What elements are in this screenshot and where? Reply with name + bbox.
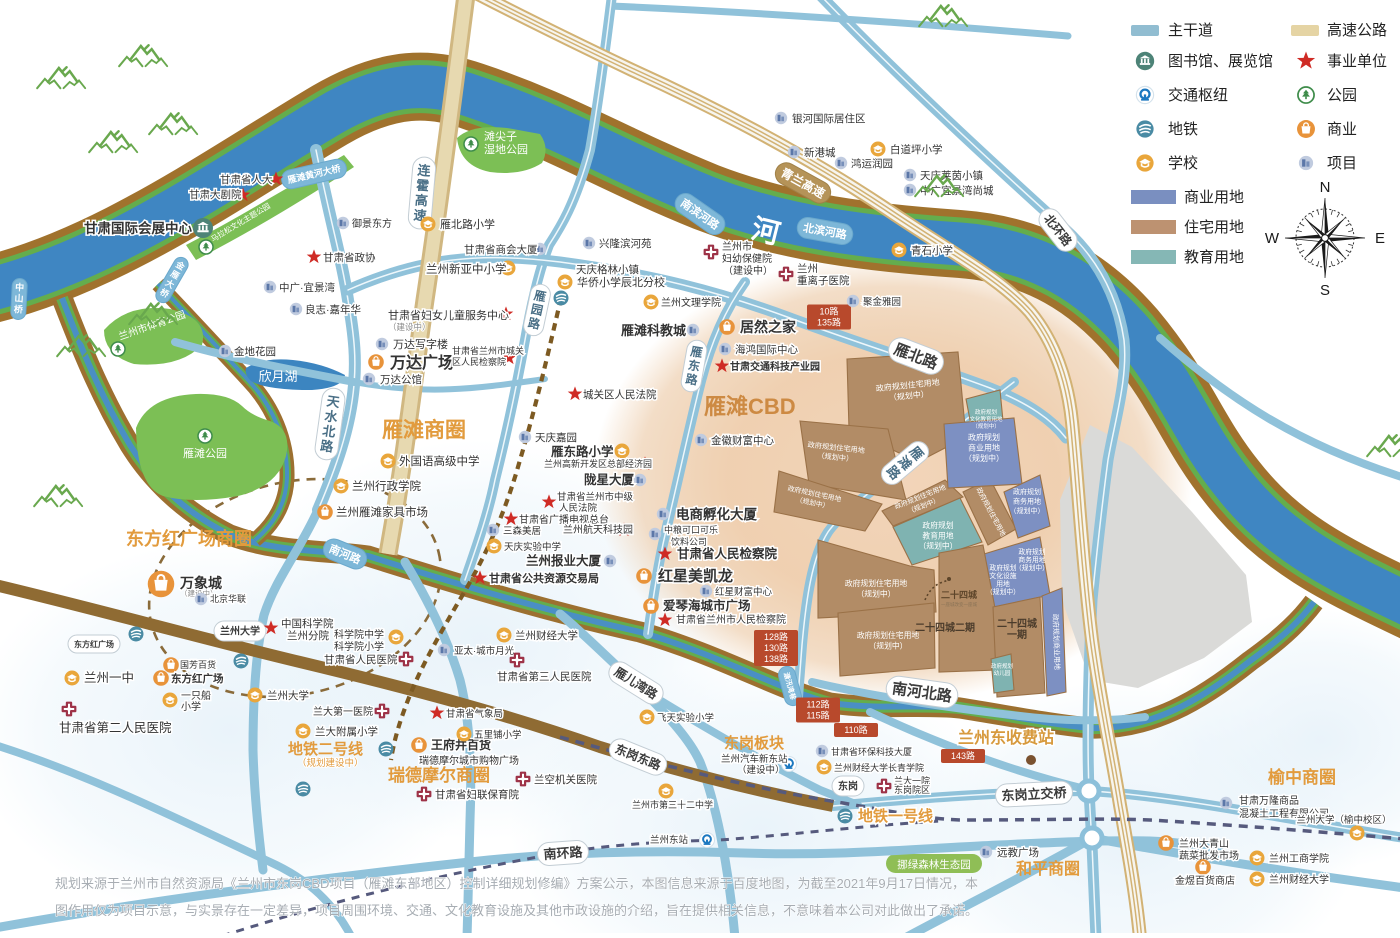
svg-text:新港城: 新港城 xyxy=(804,146,836,159)
svg-text:雁滩科教城: 雁滩科教城 xyxy=(621,323,686,338)
svg-text:甘肃省第三人民医院: 甘肃省第三人民医院 xyxy=(497,670,592,683)
svg-text:雁滩公园: 雁滩公园 xyxy=(183,446,227,460)
svg-text:东方红广场商圈: 东方红广场商圈 xyxy=(126,528,252,549)
svg-text:东方红广场: 东方红广场 xyxy=(171,672,224,685)
svg-text:外国语高级中学: 外国语高级中学 xyxy=(399,454,480,468)
svg-text:重离子医院: 重离子医院 xyxy=(797,274,850,287)
svg-text:天庆嘉园: 天庆嘉园 xyxy=(535,431,577,444)
svg-text:人民法院: 人民法院 xyxy=(559,502,598,514)
svg-text:北京华联: 北京华联 xyxy=(210,593,246,604)
svg-text:榆中商圈: 榆中商圈 xyxy=(1268,767,1336,787)
svg-text:政府规划商业用地（规划中）: 政府规划商业用地（规划中） xyxy=(964,432,1004,463)
svg-text:兰大附属小学: 兰大附属小学 xyxy=(315,725,378,738)
svg-text:规划来源于兰州市自然资源局《兰州市东岗CBD项目（雁滩东部地: 规划来源于兰州市自然资源局《兰州市东岗CBD项目（雁滩东部地区）控制详细规划修编… xyxy=(55,876,978,891)
svg-text:兰州大学（榆中校区）: 兰州大学（榆中校区） xyxy=(1296,814,1391,826)
svg-text:兰州财经大学: 兰州财经大学 xyxy=(515,629,578,642)
svg-text:桥: 桥 xyxy=(14,303,25,315)
svg-text:兰空机关医院: 兰空机关医院 xyxy=(534,773,597,786)
svg-text:湿地公园: 湿地公园 xyxy=(484,143,528,156)
svg-text:甘肃大剧院: 甘肃大剧院 xyxy=(189,188,242,201)
svg-text:青石小学: 青石小学 xyxy=(911,244,953,257)
svg-text:山: 山 xyxy=(14,292,24,303)
svg-text:甘肃万隆商品: 甘肃万隆商品 xyxy=(1239,794,1299,807)
svg-text:兰州高新开发区总部经济园: 兰州高新开发区总部经济园 xyxy=(544,458,652,469)
svg-text:欣月湖: 欣月湖 xyxy=(258,369,297,384)
svg-text:东岗: 东岗 xyxy=(838,780,858,793)
svg-text:兰州: 兰州 xyxy=(797,262,818,275)
svg-text:政府规划幼儿园: 政府规划幼儿园 xyxy=(991,662,1013,677)
svg-text:连: 连 xyxy=(417,163,432,179)
svg-text:东方红广场: 东方红广场 xyxy=(74,639,114,649)
svg-text:海鸿国际中心: 海鸿国际中心 xyxy=(735,343,798,356)
svg-text:112路: 112路 xyxy=(806,699,829,710)
svg-text:甘肃省妇女儿童服务中心: 甘肃省妇女儿童服务中心 xyxy=(388,308,509,322)
svg-text:爱琴海城市广场: 爱琴海城市广场 xyxy=(663,598,751,613)
svg-text:地铁二号线: 地铁二号线 xyxy=(288,740,363,758)
svg-text:中国科学院: 中国科学院 xyxy=(281,617,334,630)
svg-text:白道坪小学: 白道坪小学 xyxy=(890,143,943,156)
svg-text:兰州航天科技园: 兰州航天科技园 xyxy=(563,523,633,536)
svg-text:N: N xyxy=(1320,179,1331,196)
svg-text:110路: 110路 xyxy=(844,724,867,735)
svg-text:红星财富中心: 红星财富中心 xyxy=(715,586,773,598)
svg-text:科学院小学: 科学院小学 xyxy=(334,640,384,653)
svg-text:兰州汽车新东站: 兰州汽车新东站 xyxy=(721,753,788,765)
svg-text:天庆莱茵小镇: 天庆莱茵小镇 xyxy=(920,169,983,182)
svg-text:135路: 135路 xyxy=(817,317,841,328)
svg-text:政府规划商务用地（规划中）: 政府规划商务用地（规划中） xyxy=(1010,487,1045,515)
svg-text:教育用地: 教育用地 xyxy=(1184,249,1244,266)
svg-text:兰州文理学院: 兰州文理学院 xyxy=(661,296,721,309)
svg-text:兰州工商学院: 兰州工商学院 xyxy=(1269,852,1329,865)
svg-text:天庆实验中学: 天庆实验中学 xyxy=(504,541,561,553)
svg-text:S: S xyxy=(1320,282,1330,299)
svg-text:蔬菜批发市场: 蔬菜批发市场 xyxy=(1179,849,1239,862)
svg-text:国芳百货: 国芳百货 xyxy=(180,659,216,670)
svg-text:雁北路小学: 雁北路小学 xyxy=(440,217,495,231)
svg-text:甘肃国际会展中心: 甘肃国际会展中心 xyxy=(84,220,192,236)
svg-text:雁东路小学: 雁东路小学 xyxy=(551,444,614,459)
svg-text:东岗院区: 东岗院区 xyxy=(894,784,930,795)
svg-text:雁滩商圈: 雁滩商圈 xyxy=(382,418,466,442)
svg-text:甘肃省妇联保育院: 甘肃省妇联保育院 xyxy=(435,788,519,801)
svg-text:城关区人民法院: 城关区人民法院 xyxy=(583,388,657,401)
svg-text:兰州雁滩家具市场: 兰州雁滩家具市场 xyxy=(336,505,428,519)
svg-text:甘肃省环保科技大厦: 甘肃省环保科技大厦 xyxy=(831,746,912,757)
svg-text:兰州一中: 兰州一中 xyxy=(84,670,134,685)
svg-text:天庆格林小镇: 天庆格林小镇 xyxy=(576,263,639,276)
svg-text:公园: 公园 xyxy=(1327,87,1357,104)
svg-text:中粮可口可乐: 中粮可口可乐 xyxy=(664,524,718,535)
svg-text:交通枢纽: 交通枢纽 xyxy=(1168,86,1228,104)
svg-text:三森美居: 三森美居 xyxy=(503,525,541,537)
svg-text:兰州财经大学长青学院: 兰州财经大学长青学院 xyxy=(834,762,924,773)
svg-text:商业用地: 商业用地 xyxy=(1184,189,1244,206)
svg-text:电商孵化大厦: 电商孵化大厦 xyxy=(676,506,757,522)
svg-text:亚太·城市月光: 亚太·城市月光 xyxy=(454,645,515,657)
svg-text:兰州大青山: 兰州大青山 xyxy=(1179,837,1229,850)
svg-text:政府规划文化设施用地（规划中）: 政府规划文化设施用地（规划中） xyxy=(986,563,1020,596)
svg-text:中: 中 xyxy=(15,281,25,292)
svg-text:政府规划商务用地（规划中）: 政府规划商务用地（规划中） xyxy=(1015,547,1049,572)
svg-text:御景东方: 御景东方 xyxy=(352,217,392,230)
svg-text:地铁一号线: 地铁一号线 xyxy=(858,807,933,825)
svg-text:兰州财经大学: 兰州财经大学 xyxy=(1269,873,1329,886)
svg-text:138路: 138路 xyxy=(764,653,788,664)
svg-text:和平商圈: 和平商圈 xyxy=(1016,859,1080,878)
svg-text:甘肃省人大: 甘肃省人大 xyxy=(220,173,273,186)
svg-text:（建设中）: （建设中） xyxy=(723,264,773,277)
svg-text:143路: 143路 xyxy=(951,750,975,761)
svg-text:主干道: 主干道 xyxy=(1168,22,1213,39)
svg-text:南环路: 南环路 xyxy=(543,844,584,862)
svg-text:（建设中）: （建设中） xyxy=(388,322,431,332)
svg-text:甘肃省公共资源交易局: 甘肃省公共资源交易局 xyxy=(489,571,599,585)
svg-text:华侨小学辰北分校: 华侨小学辰北分校 xyxy=(577,275,665,289)
svg-text:兰州报业大厦: 兰州报业大厦 xyxy=(526,553,602,568)
svg-text:住宅用地: 住宅用地 xyxy=(1184,219,1244,236)
svg-text:图书馆、展览馆: 图书馆、展览馆 xyxy=(1168,53,1273,70)
svg-text:政府规划教育用地（规划中）: 政府规划教育用地（规划中） xyxy=(919,520,958,551)
svg-text:饮料公司: 饮料公司 xyxy=(671,536,707,547)
svg-text:甘肃交通科技产业园: 甘肃交通科技产业园 xyxy=(730,360,820,373)
svg-text:115路: 115路 xyxy=(806,710,829,721)
svg-text:甘肃省气象局: 甘肃省气象局 xyxy=(446,708,503,720)
svg-text:甘肃省第二人民医院: 甘肃省第二人民医院 xyxy=(59,721,172,735)
svg-text:银河国际居住区: 银河国际居住区 xyxy=(792,112,866,125)
svg-text:北: 北 xyxy=(321,423,336,440)
svg-text:万达写字楼: 万达写字楼 xyxy=(393,337,448,351)
svg-text:兰州市: 兰州市 xyxy=(722,240,752,253)
svg-text:飞天实验小学: 飞天实验小学 xyxy=(657,712,714,724)
svg-text:五里铺小学: 五里铺小学 xyxy=(474,729,522,741)
svg-text:兰州新亚中小学: 兰州新亚中小学 xyxy=(426,262,507,276)
svg-text:霍: 霍 xyxy=(416,177,430,193)
svg-text:甘肃省政协: 甘肃省政协 xyxy=(323,251,376,264)
svg-text:鸿运润园: 鸿运润园 xyxy=(851,157,893,170)
svg-text:聚金雅园: 聚金雅园 xyxy=(863,296,901,308)
svg-text:兰州东站: 兰州东站 xyxy=(650,834,689,846)
svg-text:兰大第一医院: 兰大第一医院 xyxy=(313,705,373,718)
svg-text:金徽财富中心: 金徽财富中心 xyxy=(711,434,774,447)
svg-text:小学: 小学 xyxy=(181,700,201,713)
svg-text:万达公馆: 万达公馆 xyxy=(380,373,422,386)
svg-text:项目: 项目 xyxy=(1327,155,1357,172)
svg-text:甘肃省商会大厦: 甘肃省商会大厦 xyxy=(464,243,538,256)
svg-text:（规划建设中）: （规划建设中） xyxy=(297,757,364,769)
svg-text:金煜百货商店: 金煜百货商店 xyxy=(1175,874,1235,887)
svg-text:兰州东收费站: 兰州东收费站 xyxy=(958,728,1054,747)
svg-text:兰州大学: 兰州大学 xyxy=(267,689,309,702)
svg-text:甘肃省兰州市中级: 甘肃省兰州市中级 xyxy=(557,491,634,503)
svg-text:中广宜景湾尚城: 中广宜景湾尚城 xyxy=(920,184,994,197)
svg-text:滩尖子: 滩尖子 xyxy=(484,129,517,143)
svg-text:挪绿森林生态园: 挪绿森林生态园 xyxy=(897,858,971,871)
svg-text:商业: 商业 xyxy=(1327,121,1357,138)
svg-text:图作用仅为项目示意，与实景存在一定差异，项目周围环境、交通、: 图作用仅为项目示意，与实景存在一定差异，项目周围环境、交通、文化教育设施及其他市… xyxy=(55,903,978,918)
svg-text:兰州大学: 兰州大学 xyxy=(220,625,260,638)
svg-text:兴隆滨河苑: 兴隆滨河苑 xyxy=(599,237,652,250)
svg-text:10路: 10路 xyxy=(819,306,838,317)
svg-text:高速公路: 高速公路 xyxy=(1327,22,1387,39)
svg-text:甘肃省人民检察院: 甘肃省人民检察院 xyxy=(677,546,778,561)
svg-text:居然之家: 居然之家 xyxy=(740,319,797,335)
svg-text:128路: 128路 xyxy=(764,631,788,642)
svg-text:红星美凯龙: 红星美凯龙 xyxy=(658,567,733,585)
svg-text:高: 高 xyxy=(414,192,428,208)
svg-text:科学院中学: 科学院中学 xyxy=(334,628,384,641)
svg-text:甘肃省人民医院: 甘肃省人民医院 xyxy=(324,653,398,666)
svg-text:130路: 130路 xyxy=(764,642,788,653)
svg-text:远教广场: 远教广场 xyxy=(997,846,1039,859)
svg-text:兰州分院: 兰州分院 xyxy=(287,629,329,642)
svg-text:W: W xyxy=(1265,230,1280,247)
svg-text:甘肃省兰州市城关: 甘肃省兰州市城关 xyxy=(452,345,524,356)
svg-text:东岗板块: 东岗板块 xyxy=(724,734,785,752)
svg-text:万达广场: 万达广场 xyxy=(389,353,454,372)
svg-text:中广·宜景湾: 中广·宜景湾 xyxy=(279,281,335,294)
svg-text:妇幼保健院: 妇幼保健院 xyxy=(722,252,772,265)
svg-text:E: E xyxy=(1375,230,1385,247)
svg-text:学校: 学校 xyxy=(1168,155,1198,172)
svg-text:瑞德摩尔商圈: 瑞德摩尔商圈 xyxy=(388,765,490,785)
svg-text:雁滩CBD: 雁滩CBD xyxy=(704,394,796,419)
svg-text:兰州市第三十二中学: 兰州市第三十二中学 xyxy=(632,799,713,810)
svg-text:金地花园: 金地花园 xyxy=(234,345,276,358)
svg-text:良志·嘉年华: 良志·嘉年华 xyxy=(305,303,361,316)
svg-text:二十四城: 二十四城 xyxy=(941,589,977,600)
svg-text:二十四城二期: 二十四城二期 xyxy=(915,621,975,634)
svg-text:陇星大厦: 陇星大厦 xyxy=(584,472,635,487)
svg-text:地铁: 地铁 xyxy=(1168,121,1198,138)
svg-text:甘肃省兰州市人民检察院: 甘肃省兰州市人民检察院 xyxy=(676,613,786,626)
svg-text:区人民检察院: 区人民检察院 xyxy=(452,356,506,367)
svg-text:一座城改变一座城: 一座城改变一座城 xyxy=(941,601,977,608)
svg-text:兰州行政学院: 兰州行政学院 xyxy=(352,479,421,493)
svg-text:（建设中）: （建设中） xyxy=(737,764,785,776)
svg-text:一只船: 一只船 xyxy=(181,689,211,702)
svg-text:事业单位: 事业单位 xyxy=(1327,53,1387,70)
